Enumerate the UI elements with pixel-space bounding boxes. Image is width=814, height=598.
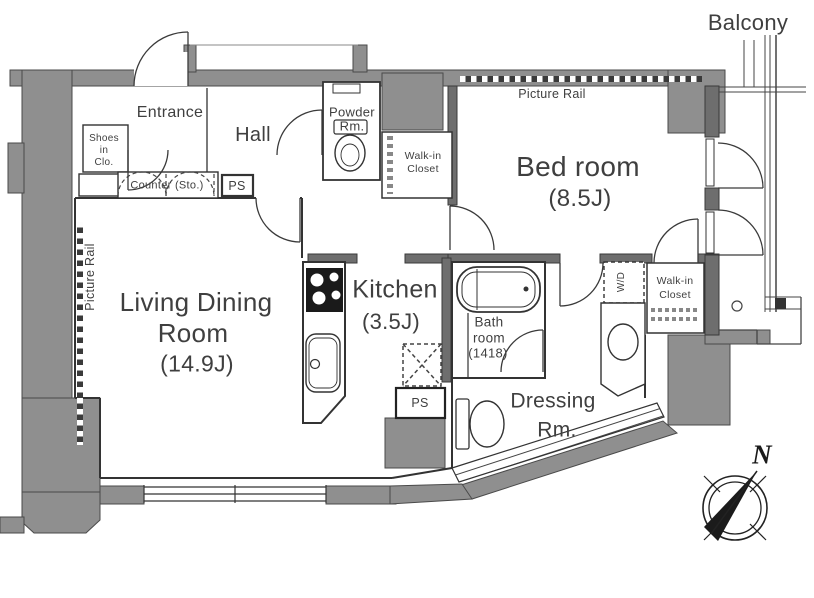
- label-walkin-right-2: Closet: [659, 290, 691, 301]
- label-hall: Hall: [235, 125, 271, 145]
- label-bedroom: Bed room: [516, 153, 640, 181]
- label-washer-dryer: W/D: [617, 272, 627, 292]
- powder-room-door: [277, 110, 322, 155]
- hall-living-door: [256, 198, 300, 242]
- label-picture-rail-top: Picture Rail: [518, 88, 586, 101]
- balcony-railing: [719, 35, 806, 344]
- label-balcony: Balcony: [708, 12, 788, 34]
- label-living-1: Living Dining: [120, 289, 273, 315]
- floor-plan: Balcony Picture Rail Picture Rail Bed ro…: [0, 0, 814, 598]
- balcony-door-lower: [718, 210, 763, 255]
- toilet2-bowl-icon: [470, 401, 504, 447]
- label-picture-rail-left: Picture Rail: [84, 243, 97, 311]
- label-bath-2: room: [473, 331, 505, 345]
- refrigerator-space: [403, 344, 441, 386]
- label-bath-size: (1418): [468, 347, 507, 360]
- balcony-drain-icon: [732, 301, 742, 311]
- bedroom-east-wall: [705, 86, 719, 137]
- label-living-size: (14.9J): [160, 353, 234, 376]
- label-kitchen: Kitchen: [352, 278, 438, 303]
- walkin-right-door: [654, 219, 698, 263]
- label-walkin-top-1: Walk-in: [405, 151, 442, 162]
- label-counter-storage: Counter (Sto.): [130, 181, 203, 192]
- balcony-door-upper: [718, 143, 763, 188]
- label-walkin-right-1: Walk-in: [657, 276, 694, 287]
- label-kitchen-size: (3.5J): [362, 311, 420, 333]
- label-ps-top: PS: [228, 180, 245, 193]
- bedroom-door: [450, 206, 494, 250]
- dressing-door: [560, 263, 603, 306]
- label-powder-1: Powder: [329, 106, 375, 119]
- toilet2-tank-icon: [456, 399, 469, 449]
- label-bath-1: Bath: [475, 315, 504, 329]
- label-living-2: Room: [158, 320, 229, 346]
- label-dressing-1: Dressing: [510, 391, 595, 412]
- label-shoes-closet-3: Clo.: [95, 158, 114, 168]
- label-ps-bottom: PS: [411, 397, 428, 410]
- label-dressing-2: Rm.: [537, 420, 576, 441]
- pillar-bottom-right: [668, 335, 730, 425]
- label-powder-2: Rm.: [340, 120, 365, 133]
- compass-icon: [703, 471, 767, 541]
- label-bedroom-size: (8.5J): [548, 187, 611, 211]
- label-entrance: Entrance: [137, 105, 203, 121]
- pillar-below-ps: [385, 418, 445, 468]
- washbasin-bowl-icon: [608, 324, 638, 360]
- label-shoes-closet-2: in: [100, 146, 108, 156]
- pillar-top-middle: [382, 73, 443, 130]
- living-window: [144, 485, 326, 503]
- label-shoes-closet-1: Shoes: [89, 134, 119, 144]
- label-walkin-top-2: Closet: [407, 164, 439, 175]
- label-compass-north: N: [752, 442, 772, 469]
